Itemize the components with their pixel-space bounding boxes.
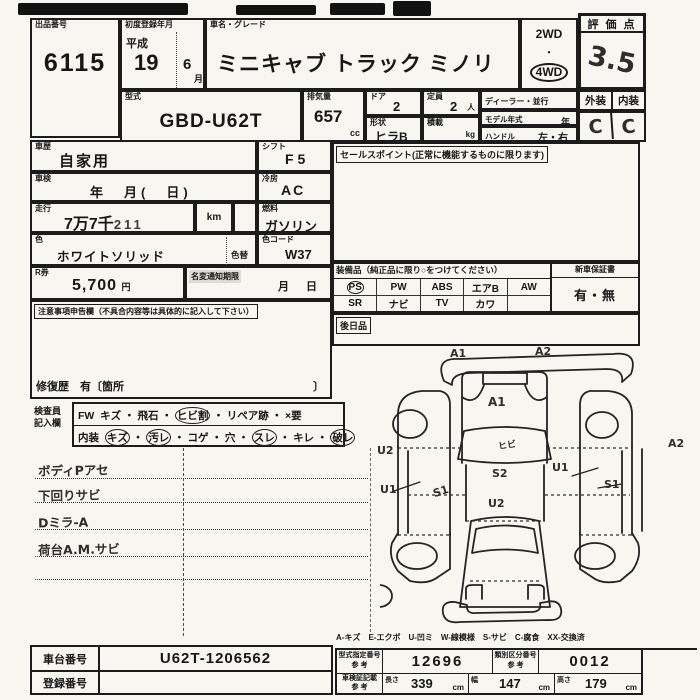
divider — [74, 425, 343, 426]
equipment-row1: PS PW ABS エアB AW — [334, 279, 550, 295]
length-cell: 長さ 339 cm — [383, 674, 469, 693]
warranty-value: 有・無 — [550, 278, 638, 311]
interior-row: 内装 キズ ・ 汚レ ・ コゲ ・ 穴 ・ スレ ・ キレ ・ 破レ — [78, 429, 355, 446]
mileage-label: 走行 — [35, 205, 51, 214]
equipment-item: SR — [334, 296, 377, 311]
displacement-unit: cc — [350, 128, 360, 138]
type-cert-label: 型式指定番号 参 考 — [337, 650, 383, 674]
history-label: 車歴 — [35, 143, 51, 152]
chassis-value: U62T-1206562 — [100, 647, 331, 672]
damage-mark: ヒビ — [497, 437, 517, 452]
doors-value: 2 — [393, 99, 400, 114]
model-year-label: モデル年式 — [485, 114, 523, 125]
name-change-label: 名変通知期限 — [189, 270, 241, 283]
name-change-value: 月 日 — [278, 278, 320, 294]
inspection-cell: 車検 年 月( 日) — [30, 172, 257, 202]
note-rule — [35, 478, 368, 479]
divider — [176, 32, 177, 88]
drive-type-cell: 2WD ・ 4WD — [520, 18, 578, 90]
handle-cell: ハンドル 左・右 — [480, 126, 578, 142]
length-value: 339 — [411, 676, 433, 691]
damage-mark: A1 — [450, 347, 466, 360]
drive-4wd-wrap: 4WD — [522, 58, 576, 86]
chassis-label: 車台番号 — [32, 647, 100, 672]
auction-sheet-scan: { "sheet": { "auction_no": {"label":"出品番… — [0, 0, 700, 700]
doors-cell: ドア 2 — [365, 90, 422, 116]
exterior-label: 外装 — [580, 92, 613, 109]
damage-mark: A1 — [488, 395, 506, 409]
reference-table: 型式指定番号 参 考 12696 類別区分番号 参 考 0012 車検証記載 参… — [335, 648, 643, 695]
note-rule — [35, 579, 368, 580]
inspection-value: 年 月( 日) — [90, 182, 192, 201]
damage-mark: U2 — [377, 444, 394, 457]
car-name-label: 車名・グレード — [210, 21, 266, 30]
color-cell: 色 ホワイトソリッド 色替 — [30, 233, 257, 266]
chassis-table: 車台番号 U62T-1206562 登録番号 — [30, 645, 333, 695]
equipment-item: ナビ — [377, 296, 420, 311]
capacity-unit: 人 — [467, 102, 475, 113]
color-code-cell: 色コード W37 — [257, 233, 332, 266]
later-goods-box: 後日品 — [332, 313, 640, 346]
cutoff-header-blob — [330, 3, 385, 15]
history-value: 自家用 — [59, 150, 110, 171]
car-name-value: ミニキャブ トラック ミノリ — [217, 48, 495, 78]
mileage-unit-cell: km — [195, 202, 233, 233]
model-code-label: 型式 — [125, 93, 141, 102]
note-rule — [35, 502, 368, 503]
equipment-item: PW — [377, 279, 420, 295]
repair-history-close: 〕 — [313, 378, 324, 394]
equipment-ps-circled: PS — [347, 281, 364, 294]
aircon-label: 冷房 — [262, 175, 278, 184]
displacement-label: 排気量 — [307, 93, 331, 102]
width-cell: 幅 147 cm — [469, 674, 555, 693]
r-ticket-wrap: 5,700 円 — [72, 277, 131, 295]
sales-point-box: セールスポイント(正常に機能するものに限ります) — [332, 142, 640, 262]
damage-mark: A2 — [668, 437, 684, 450]
interior-grade: C — [612, 111, 646, 141]
equipment-item: TV — [421, 296, 464, 311]
color-label: 色 — [35, 236, 43, 245]
registration-year: 19 — [134, 50, 158, 76]
damage-mark: A2 — [535, 345, 551, 358]
damage-mark: U1 — [380, 483, 397, 496]
fold-line — [183, 448, 184, 636]
damage-mark: S2 — [492, 467, 508, 480]
score-cell: 評 価 点 3.5 — [578, 13, 646, 90]
shift-value: F 5 — [285, 151, 305, 167]
damage-mark: U2 — [488, 497, 505, 510]
equipment-item: PS — [334, 279, 377, 295]
type-cert-value: 12696 — [383, 650, 493, 674]
mileage-digits: 211 — [114, 217, 144, 232]
note-rule — [35, 529, 368, 530]
mileage-value: 7万7千211 — [64, 210, 144, 234]
first-registration-cell: 初度登録年月 平成 19 6 月 — [120, 18, 205, 90]
equipment-item: カワ — [464, 296, 507, 311]
later-goods-label: 後日品 — [336, 317, 371, 334]
fuel-cell: 燃料 ガソリン — [257, 202, 332, 233]
inspector-table: FW キズ ・ 飛石 ・ ヒビ割 ・ リペア跡 ・ ×要 内装 キズ ・ 汚レ … — [72, 402, 345, 447]
aircon-cell: 冷房 AC — [257, 172, 332, 202]
warranty-label: 新車保証書 — [550, 264, 638, 278]
sales-point-label: セールスポイント(正常に機能するものに限ります) — [336, 146, 548, 163]
divider — [226, 237, 227, 265]
truck-outline-drawing — [380, 345, 700, 632]
note-line: ボディPアセ — [38, 459, 109, 479]
doors-label: ドア — [370, 93, 386, 102]
interior-label: 内装 — [613, 92, 644, 109]
r-ticket-value: 5,700 — [72, 277, 117, 294]
repair-history-label: 修復歴 有〔箇所 — [36, 378, 124, 394]
name-change-cell: 名変通知期限 月 日 — [185, 266, 332, 300]
car-name-cell: 車名・グレード ミニキャブ トラック ミノリ — [205, 18, 520, 90]
color-code-value: W37 — [285, 247, 312, 262]
capacity-cell: 定員 2 人 — [422, 90, 480, 116]
model-code-cell: 型式 GBD-U62T — [120, 90, 302, 142]
mileage-unit: km — [207, 212, 221, 223]
score-value: 3.5 — [576, 28, 647, 92]
shift-label: シフト — [262, 143, 286, 152]
grade-value-cell: C C — [578, 111, 646, 142]
auction-number-cell: 出品番号 6115 — [30, 18, 120, 138]
caution-label: 注意事項申告欄（不具合内容等は具体的に記入して下さい） — [34, 304, 258, 319]
height-cell: 高さ 179 cm — [555, 674, 641, 693]
auction-number-label: 出品番号 — [35, 21, 67, 30]
shift-cell: シフト F 5 — [257, 140, 332, 172]
capacity-label: 定員 — [427, 93, 443, 102]
registration-label: 登録番号 — [32, 672, 100, 693]
cutoff-header-blob — [393, 1, 431, 16]
month-unit: 月 — [194, 72, 203, 85]
equipment-box: 装備品（純正品に限り○をつけてください） 新車保証書 有・無 PS PW ABS… — [332, 262, 640, 313]
displacement-value: 657 — [314, 107, 342, 127]
fold-line — [370, 448, 371, 632]
first-registration-label: 初度登録年月 — [125, 21, 173, 30]
class-no-label: 類別区分番号 参 考 — [493, 650, 539, 674]
history-cell: 車歴 自家用 — [30, 140, 257, 172]
caution-box: 注意事項申告欄（不具合内容等は具体的に記入して下さい） 修復歴 有〔箇所 〕 — [30, 300, 332, 399]
class-no-value: 0012 — [539, 650, 641, 674]
mileage-cell: 走行 7万7千211 — [30, 202, 195, 233]
height-value: 179 — [585, 676, 607, 691]
aircon-value: AC — [281, 182, 305, 198]
equipment-row2: SR ナビ TV カワ — [334, 295, 550, 311]
displacement-cell: 排気量 657 cc — [302, 90, 365, 142]
dealer-cell: ディーラー・並行 — [480, 90, 578, 110]
mileage-blank-cell — [233, 202, 257, 233]
mileage-man: 7万7千 — [64, 216, 114, 233]
load-cell: 積載 kg — [422, 116, 480, 142]
fuel-label: 燃料 — [262, 205, 278, 214]
model-code-value: GBD-U62T — [122, 104, 300, 140]
r-ticket-cell: R券 5,700 円 — [30, 266, 185, 300]
damage-mark: S1 — [604, 478, 620, 491]
shape-cell: 形状 ヒラB — [365, 116, 422, 142]
equipment-item: ABS — [421, 279, 464, 295]
drive-2wd: 2WD — [522, 27, 576, 41]
r-ticket-label: R券 — [35, 269, 49, 278]
note-rule — [35, 556, 368, 557]
load-unit: kg — [466, 130, 475, 139]
handle-label: ハンドル — [485, 131, 515, 142]
damage-legend: A-キズ E-エクボ U-凹ミ W-線模様 S-サビ C-腐食 XX-交換済 — [336, 632, 585, 643]
exterior-grade: C — [579, 112, 614, 141]
registration-month: 6 — [183, 56, 191, 73]
equipment-label: 装備品（純正品に限り○をつけてください） — [334, 264, 550, 279]
dealer-label: ディーラー・並行 — [485, 96, 548, 107]
equipment-item — [508, 296, 550, 311]
registration-value — [100, 672, 331, 693]
inspector-label: 検査員 記入欄 — [34, 406, 61, 429]
equipment-item: エアB — [464, 279, 507, 295]
rule-extension — [643, 648, 697, 650]
color-value: ホワイトソリッド — [57, 246, 165, 265]
width-value: 147 — [499, 676, 521, 691]
inspection-label: 車検 — [35, 175, 51, 184]
drive-4wd-circled: 4WD — [530, 63, 569, 82]
damage-diagram: A1 A2 A1 ヒビ U2 U1 S1 S2 U1 S1 A2 U2 — [380, 345, 700, 632]
grade-header-cell: 外装 内装 — [578, 90, 646, 111]
damage-mark: U1 — [552, 461, 569, 474]
dims-label: 車検証記載 参 考 — [337, 674, 383, 693]
cutoff-header-blob — [236, 5, 316, 15]
cutoff-header-blob — [18, 3, 188, 15]
color-change-label: 色替 — [231, 249, 248, 261]
fw-row: FW キズ ・ 飛石 ・ ヒビ割 ・ リペア跡 ・ ×要 — [78, 407, 302, 424]
capacity-value: 2 — [450, 99, 457, 114]
auction-number-value: 6115 — [32, 42, 118, 84]
equipment-item: AW — [508, 279, 550, 295]
model-year-cell: モデル年式 年 — [480, 110, 578, 126]
color-code-label: 色コード — [262, 236, 294, 245]
load-label: 積載 — [427, 119, 443, 128]
shape-label: 形状 — [370, 119, 386, 128]
era-text: 平成 — [126, 35, 148, 51]
r-ticket-unit: 円 — [122, 282, 131, 292]
